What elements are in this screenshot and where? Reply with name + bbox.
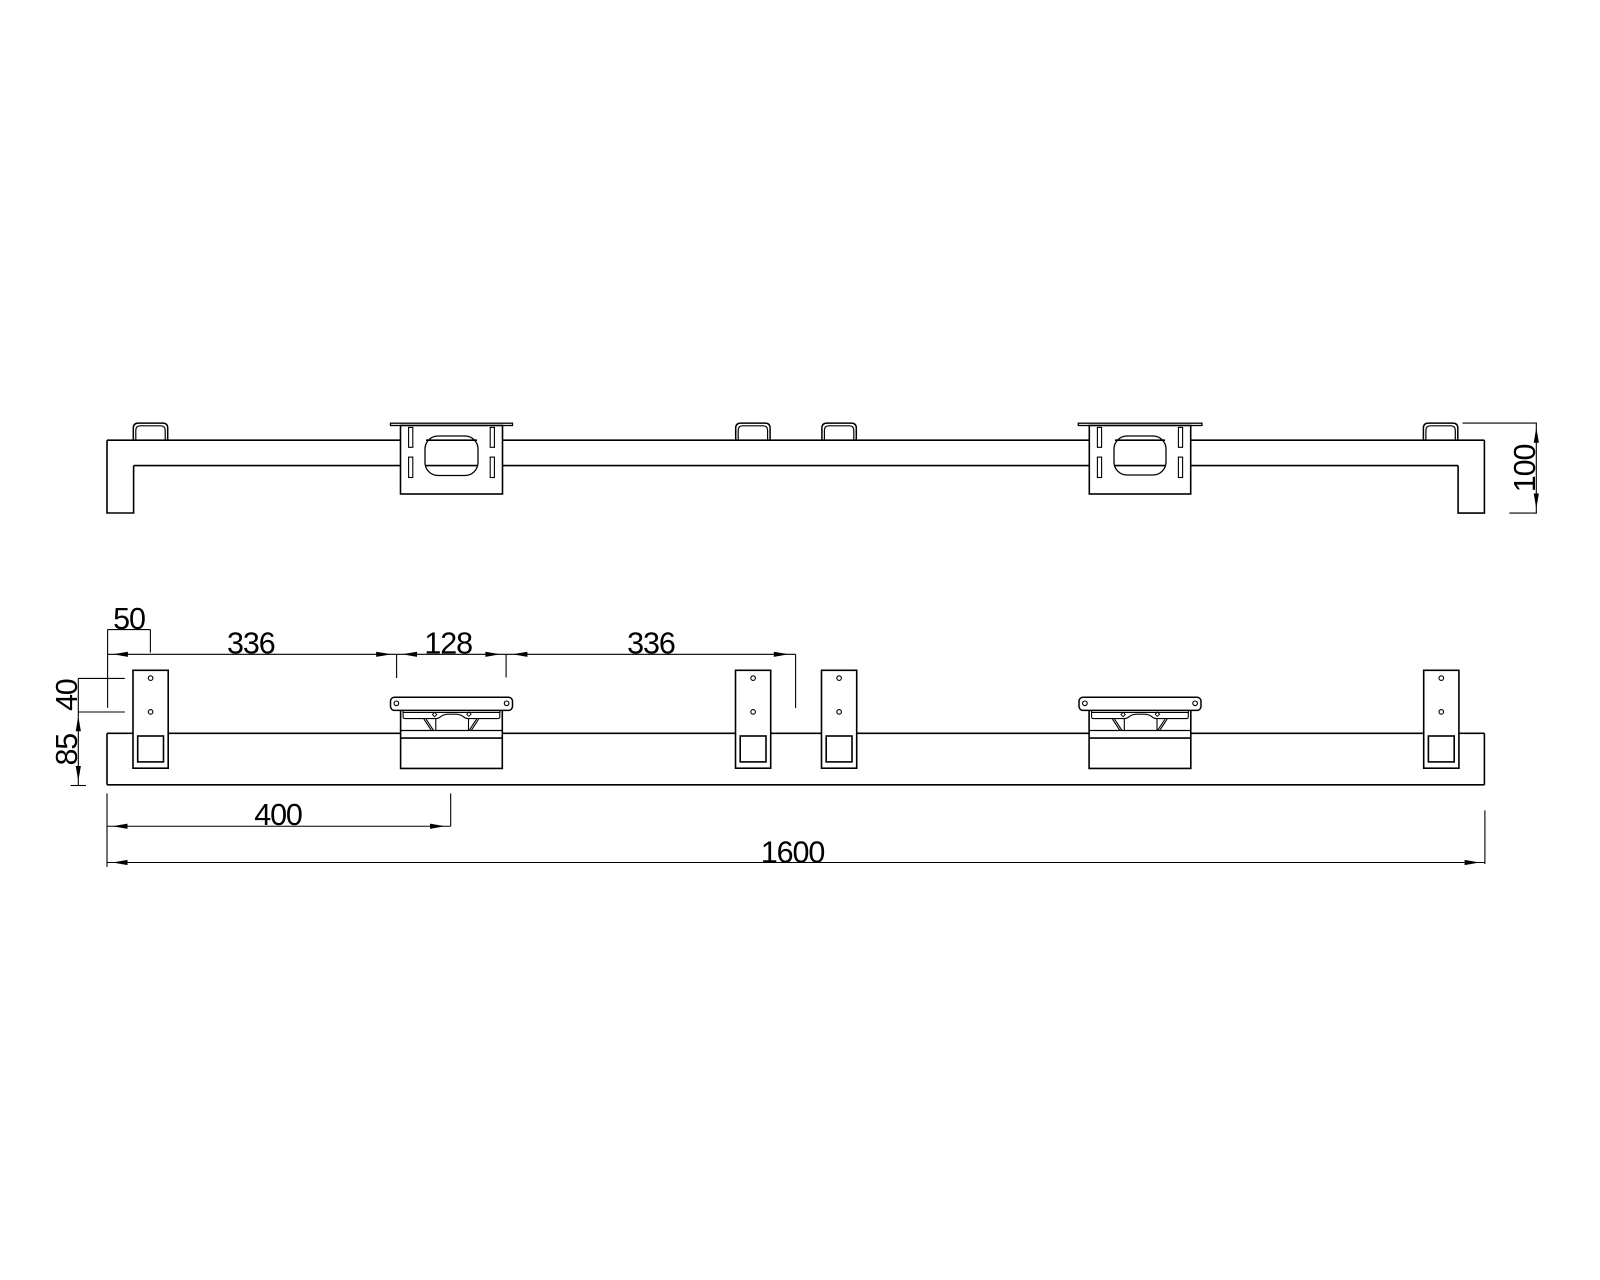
svg-text:100: 100 xyxy=(1508,444,1542,492)
svg-text:336: 336 xyxy=(227,627,275,661)
svg-text:1600: 1600 xyxy=(761,836,825,870)
svg-text:128: 128 xyxy=(424,627,472,661)
svg-text:400: 400 xyxy=(254,798,302,832)
svg-text:50: 50 xyxy=(113,602,145,636)
svg-text:85: 85 xyxy=(50,734,84,766)
svg-text:336: 336 xyxy=(627,627,675,661)
svg-text:40: 40 xyxy=(50,679,84,711)
